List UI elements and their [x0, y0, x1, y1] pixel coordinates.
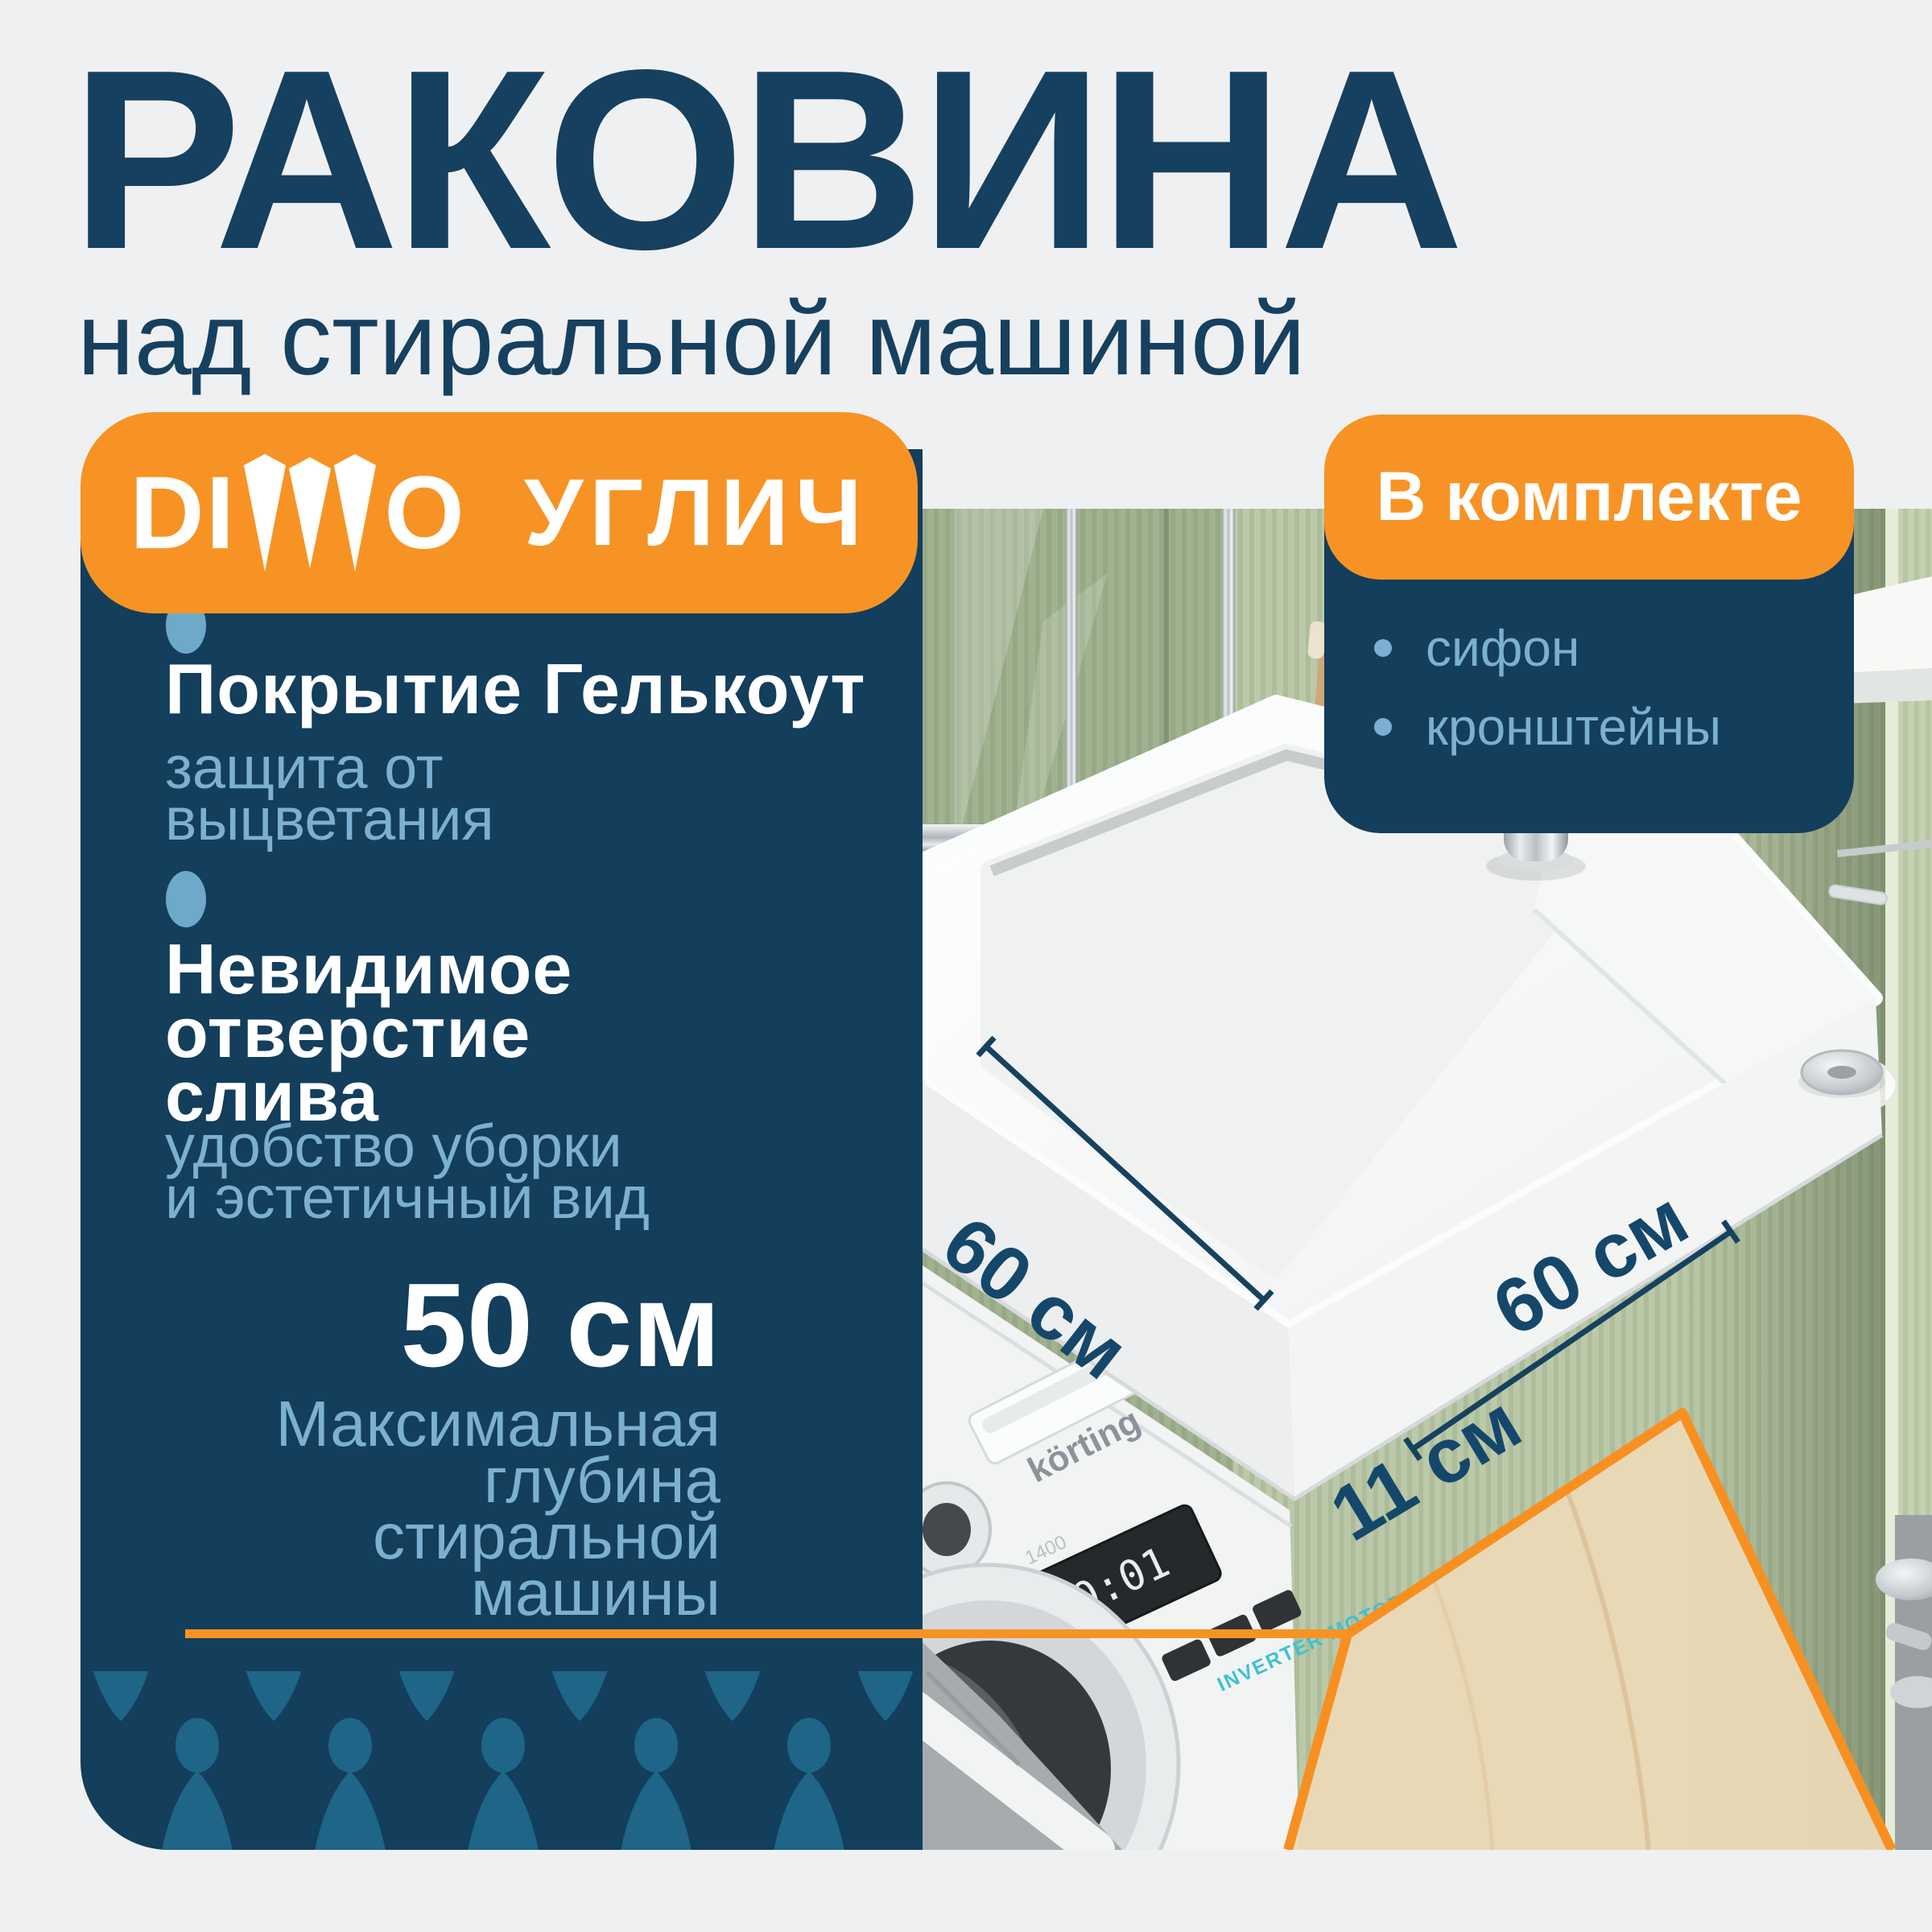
depth-caption: Максимальная глубина стиральной машины: [237, 1396, 720, 1621]
page-subtitle: над стиральной машиной: [77, 283, 1306, 397]
feature-1-desc: защита от выцветания: [165, 742, 494, 845]
included-card-header: В комплекте: [1324, 415, 1854, 580]
bullet-dot-icon: [1374, 718, 1392, 736]
diwo-logo-icon: DI O: [130, 452, 466, 573]
bullet-dot-icon: [166, 871, 206, 927]
included-list: сифон кронштейны: [1374, 618, 1721, 757]
orange-divider-line-photo: [923, 1629, 1348, 1638]
page-title: РАКОВИНА: [71, 32, 1459, 288]
depth-value: 50 см: [322, 1265, 720, 1386]
logo-w-chevrons-icon: [242, 452, 379, 573]
model-name: УГЛИЧ: [524, 458, 869, 568]
list-item: сифон: [1374, 618, 1721, 678]
features-panel: Покрытие Гелькоут защита от выцветания Н…: [80, 449, 923, 1850]
logo-di: DI: [130, 454, 236, 572]
brand-badge: DI O УГЛИЧ: [80, 412, 918, 613]
product-infographic: РАКОВИНА над стиральной машиной DI O УГЛ…: [0, 0, 1932, 1932]
feature-1-title: Покрытие Гелькоут: [165, 657, 866, 720]
feature-2-title: Невидимое отверстие слива: [165, 937, 572, 1128]
feature-2-desc: удобство уборки и эстетичный вид: [165, 1121, 650, 1224]
orange-divider-line: [185, 1629, 923, 1638]
bullet-dot-icon: [1374, 639, 1392, 657]
decorative-pattern: [80, 1671, 923, 1850]
list-item: кронштейны: [1374, 697, 1721, 757]
logo-o: O: [384, 454, 466, 572]
